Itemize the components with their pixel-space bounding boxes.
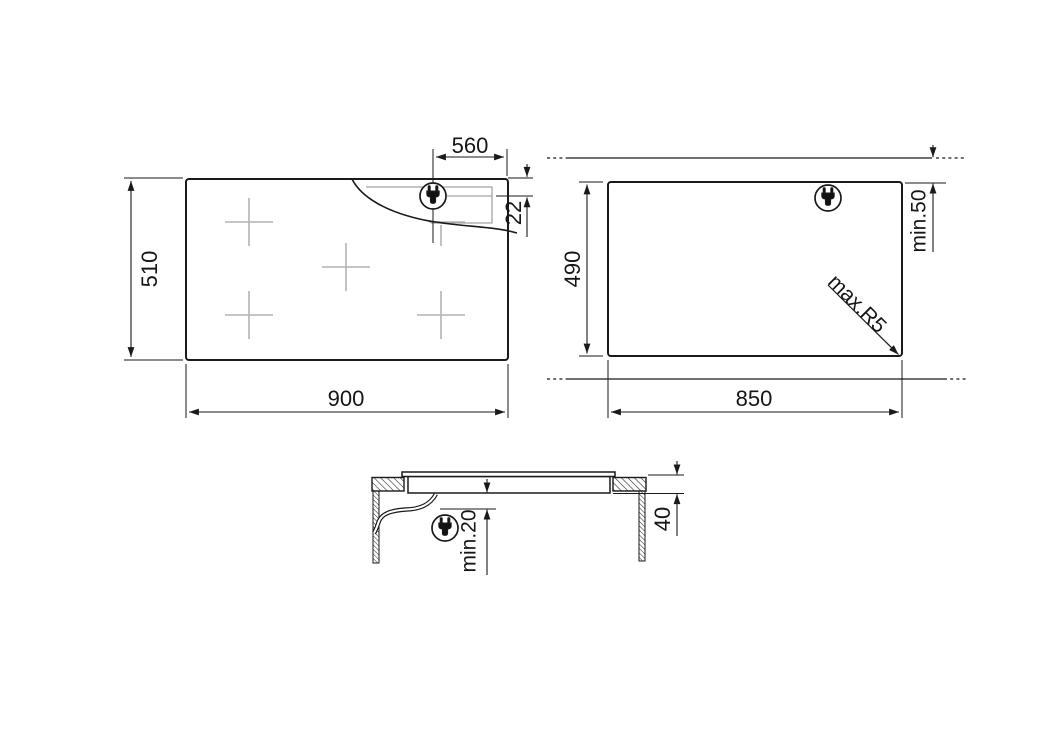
cabinet-wall-right xyxy=(639,491,645,561)
section-view xyxy=(372,461,684,575)
dim-label-cutout-width: 850 xyxy=(736,388,773,410)
mains-cable xyxy=(374,494,436,533)
dim-label-rear-clearance: min.50 xyxy=(909,189,930,252)
dim-label-clearance-below: min.20 xyxy=(459,509,480,572)
ext-lines-22 xyxy=(496,178,533,196)
technical-drawing-page: 510 900 560 22 490 850 min.50 max.R5 min… xyxy=(0,0,1050,751)
dim-label-plan-height: 510 xyxy=(139,251,161,288)
power-plug-icon xyxy=(815,185,841,211)
dim-label-recess-depth: 40 xyxy=(652,507,674,531)
dim-label-plug-depth: 22 xyxy=(503,201,525,225)
burner-cross-marks xyxy=(225,198,465,339)
worktop-section-left xyxy=(372,478,404,492)
plan-view xyxy=(124,149,533,418)
worktop-section-right xyxy=(613,478,646,492)
hob-outline xyxy=(186,179,508,360)
hob-glass-section xyxy=(402,472,615,477)
power-plug-icon xyxy=(420,183,446,209)
hob-body-section xyxy=(408,477,610,494)
cutout-outline xyxy=(608,182,902,356)
dim-label-plan-width: 900 xyxy=(328,388,365,410)
power-plug-icon xyxy=(432,515,458,541)
dim-label-cutout-height: 490 xyxy=(562,251,584,288)
drawing-linework xyxy=(0,0,1050,751)
dim-label-plug-offset: 560 xyxy=(452,135,489,157)
cutout-view xyxy=(547,145,967,418)
